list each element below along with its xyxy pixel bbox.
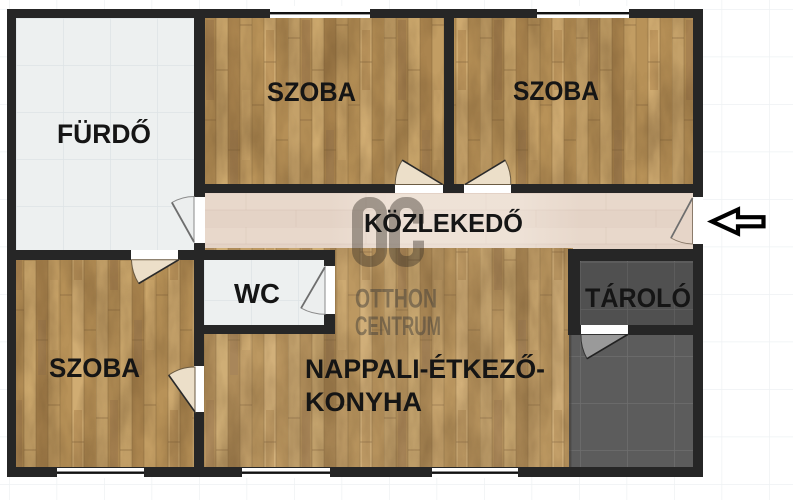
svg-text:SZOBA: SZOBA (267, 77, 356, 107)
svg-text:SZOBA: SZOBA (513, 76, 599, 106)
svg-text:CENTRUM: CENTRUM (355, 311, 441, 341)
svg-text:TÁROLÓ: TÁROLÓ (585, 282, 691, 313)
svg-text:FÜRDŐ: FÜRDŐ (57, 118, 151, 149)
svg-text:NAPPALI-ÉTKEZŐ-: NAPPALI-ÉTKEZŐ- (305, 353, 545, 384)
svg-text:KONYHA: KONYHA (305, 387, 422, 417)
svg-text:SZOBA: SZOBA (49, 353, 140, 383)
svg-text:KÖZLEKEDŐ: KÖZLEKEDŐ (364, 208, 523, 238)
svg-text:OTTHON: OTTHON (355, 284, 437, 314)
svg-text:WC: WC (234, 278, 280, 309)
